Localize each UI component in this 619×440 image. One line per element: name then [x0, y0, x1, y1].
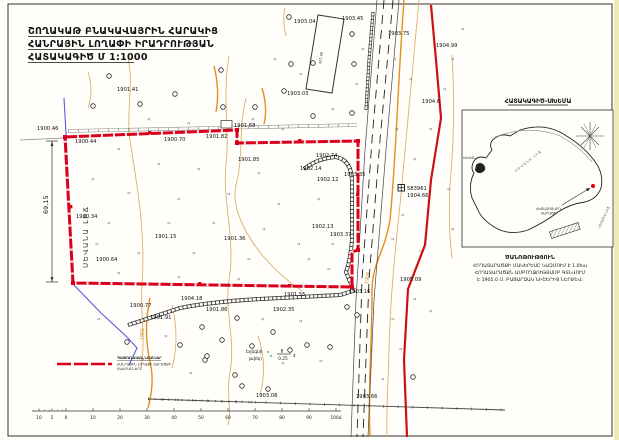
inset-map: ՀԱՏԱԿԱԳԻԾ-ՍԽԵՄԱ ՍԵՎԱՆ ՍԵՎԱՆԱ ԼԻՃ ՀԵՏԱԶՈՏ… [462, 98, 613, 247]
svg-text:50: 50 [198, 415, 204, 421]
title-line-3: ՀԱՏԱԿԱԳԻԾ Մ 1:1000 [28, 52, 148, 63]
reed-frac-top: 8 [281, 349, 284, 355]
site-location-dot [591, 184, 595, 188]
svg-text:0: 0 [65, 415, 68, 421]
svg-text:5: 5 [51, 415, 54, 421]
svg-text:20: 20 [117, 415, 123, 421]
title-line-2: ՀԱՆՐԱՅԻՆ ԼՈՂԱՓԻ ԻՐԱԴՐՈՒԹՅԱՆ [28, 39, 214, 50]
reed-symbol [267, 351, 269, 353]
elev-point: 1901.41 [117, 87, 138, 93]
study-area-label-2: ՏԱՐԱԾՔ [541, 212, 557, 216]
plan-canvas: 1904 1902 [0, 0, 619, 440]
legend-line-2: ՍԱՀՄԱՆՆԵՐԸ [117, 367, 143, 371]
benchmark-id: 583961 [407, 186, 427, 192]
elev-point: 1904.18 [181, 296, 202, 302]
svg-text:80: 80 [279, 415, 285, 421]
survey-plan-page: 1904 1902 [0, 0, 619, 440]
town-label: ՍԵՎԱՆ [463, 156, 476, 160]
reed-label-1: եղեգնի [246, 349, 263, 355]
note-line-3: Է 1905.0 Մ. ԲԱՑԱՐՁԱԿ ՆԻՇԵՐԻՑ ՆԵՐՔԵՎ: [477, 277, 583, 283]
elev-point: 1901.68 [234, 123, 255, 129]
study-area-label-1: ՀԵՏԱԶՈՏՎՈՂ [536, 207, 561, 211]
benchmark-symbol [398, 185, 405, 192]
elev-point: 1901.15 [155, 234, 176, 240]
elev-point: 1901.82 [206, 134, 227, 140]
reed-symbol [270, 355, 272, 357]
elev-point: 1901.86 [206, 307, 227, 313]
elev-point: 1901.36 [224, 236, 245, 242]
legend-title: ՊԱՅՄԱՆԱԿԱՆ ՆՇԱՆՆԵՐ [117, 356, 162, 360]
elev-point: 1903.04 [294, 19, 316, 25]
elev-point: 1902.12 [317, 177, 338, 183]
dimension-label: 69,15 [42, 195, 50, 214]
elev-point: 1903.03 [287, 91, 308, 97]
elev-point: 1900.44 [75, 139, 97, 145]
elev-point: 1901.91 [150, 315, 171, 321]
benchmark-elevation: 1904.66 [407, 193, 428, 199]
note-title: ԾԱՆՈԹՈՒԹՅՈՒՆ [505, 255, 555, 261]
elev-point: 1902.14 [300, 166, 322, 172]
svg-text:90: 90 [306, 415, 312, 421]
elev-point: 1902.13 [312, 224, 333, 230]
elev-point: 1903.66 [356, 394, 377, 400]
elev-point: 1902.35 [273, 307, 294, 313]
elev-point: 1902.74 [316, 153, 338, 159]
elev-point: 1903.16 [349, 289, 370, 295]
elev-point: 1900.77 [130, 303, 151, 309]
elev-point: 1903.35 [344, 172, 365, 178]
legend-line-1: ՀԱՆՐԱՅԻՆ ԼՈՂԱՓԻ ՏԱՐԱԾՔԻ [117, 363, 172, 367]
reed-frac-bottom: 0.25 [278, 356, 288, 362]
elev-point: 1903.08 [256, 393, 277, 399]
elev-point: 1900.64 [96, 257, 118, 263]
elev-point: 1901.85 [238, 157, 259, 163]
reed-label-2: թփեր [249, 356, 262, 362]
note-line-1: ՀՈՂԱՏԱՐԱԾՔԻ ՄԱԿԵՐԵՍԸ ԿԱԶՄՈՒՄ Է 1.0հա [473, 263, 588, 269]
scan-edge-strip [614, 0, 619, 440]
svg-text:10: 10 [90, 415, 96, 421]
elev-point: 1900.34 [76, 214, 98, 220]
elev-point: 1903.37 [330, 232, 351, 238]
contour-label-1902: 1902 [139, 328, 146, 340]
elev-point: 1905.09 [400, 277, 421, 283]
elev-point: 1903.45 [342, 16, 363, 22]
title-line-1: ՇՈՂԱԿԱԹ ԲՆԱԿԱՎԱՅՐԻՆ ՀԱՐԱԿԻՑ [28, 26, 218, 37]
elev-point: 1904.99 [436, 43, 457, 49]
monument-flag [221, 121, 232, 129]
elev-point: 1900.46 [37, 126, 58, 132]
elev-point: 1903.75 [388, 31, 409, 37]
svg-text:10: 10 [36, 415, 42, 421]
reed-count: 4 [293, 353, 296, 359]
svg-text:30: 30 [144, 415, 150, 421]
svg-text:70: 70 [252, 415, 258, 421]
elev-point: 1904.6 [422, 99, 440, 105]
svg-text:60: 60 [225, 415, 231, 421]
elev-point: 1900.70 [164, 137, 185, 143]
svg-text:40: 40 [171, 415, 177, 421]
note-line-2: ՀՈՂԱՏԱՐԱԾՔՆ ԱՄԲՈՂՋՈՒԹՅԱՄԲ ԳՏՆՎՈՒՄ [475, 270, 586, 276]
elev-point: 1901.55 [284, 292, 305, 298]
svg-text:100մ: 100մ [331, 415, 342, 421]
inset-title: ՀԱՏԱԿԱԳԻԾ-ՍԽԵՄԱ [505, 98, 572, 105]
